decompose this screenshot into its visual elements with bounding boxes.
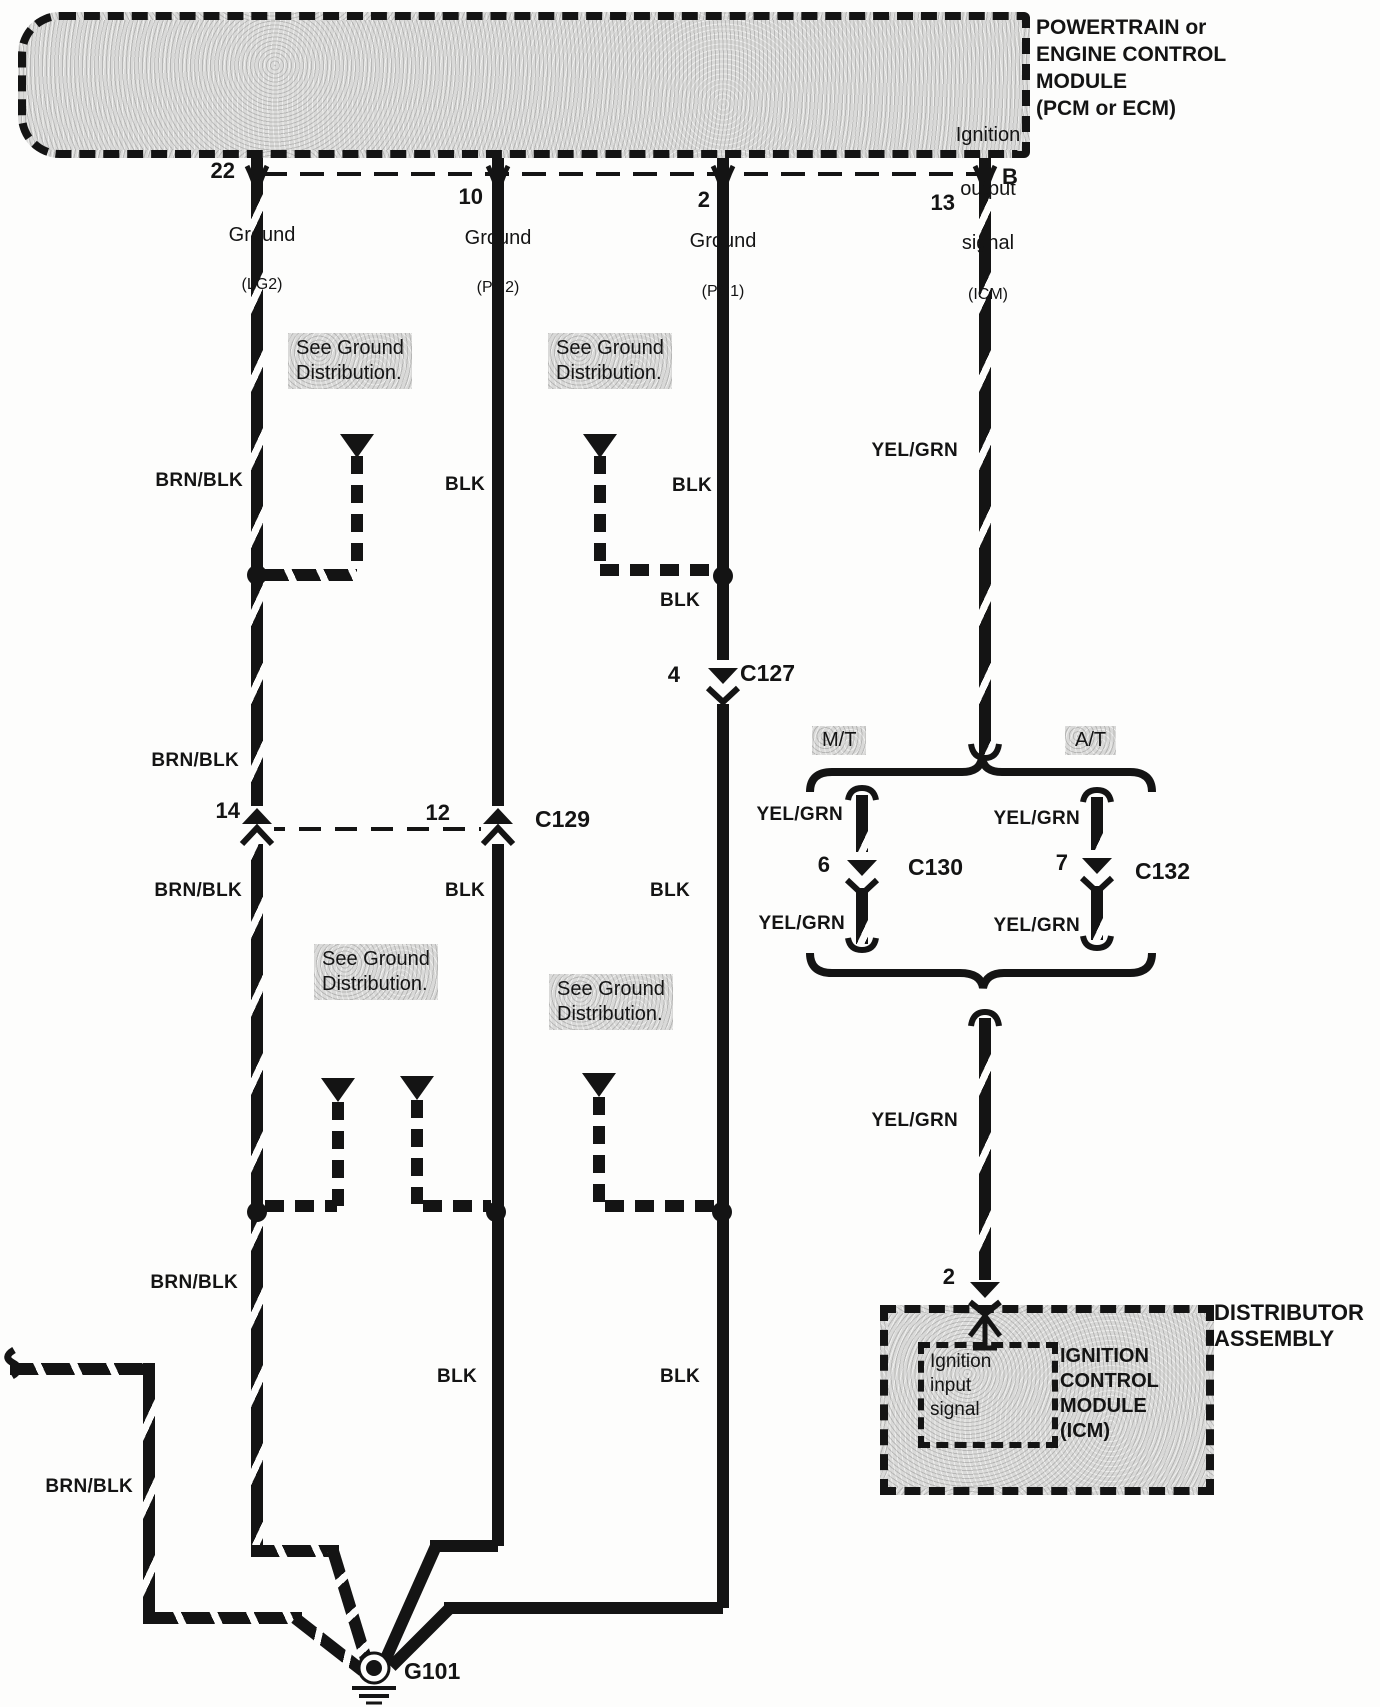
- see-ground-note-line2: Distribution.: [557, 1002, 665, 1027]
- pcm-title-line3: MODULE: [1036, 68, 1226, 95]
- pin-label-ground-pg2: Ground: [448, 227, 548, 250]
- icm-title-line2: CONTROL: [1060, 1369, 1159, 1394]
- pin-label-ignition-3: signal: [938, 232, 1038, 255]
- wire-label-brnblk-2: BRN/BLK: [129, 750, 239, 772]
- wire-pg2-blk-vertical: [492, 158, 504, 1546]
- pin-sub-pg1: (PG1): [673, 283, 773, 301]
- wire-icm-yelgrn-lower: [979, 1018, 991, 1280]
- c130-id: C130: [908, 854, 963, 881]
- icm-title-line4: (ICM): [1060, 1419, 1159, 1444]
- pin-label-ground-pg1: Ground: [673, 230, 773, 253]
- wire-label-blk-4: BLK: [415, 880, 485, 902]
- pin-number-10: 10: [428, 184, 483, 210]
- pin-sub-pg2: (PG2): [448, 279, 548, 297]
- pcm-title-line4: (PCM or ECM): [1036, 95, 1226, 122]
- pin-sub-icm: (ICM): [938, 286, 1038, 304]
- c129-connector-icon: [240, 806, 515, 844]
- input-signal-line1: Ignition: [930, 1350, 991, 1374]
- wire-label-brnblk-5: BRN/BLK: [23, 1476, 133, 1498]
- pin-label-ignition-1: Ignition: [938, 124, 1038, 147]
- distributor-pin-number: 2: [905, 1264, 955, 1290]
- see-ground-note-line1: See Ground: [557, 977, 665, 1002]
- wire-farleft-brnblk-bottom: [150, 1612, 302, 1624]
- icm-title-line1: IGNITION: [1060, 1344, 1159, 1369]
- stub-row1-left-horizontal: [265, 569, 357, 581]
- stub-row2-right-horizontal: [605, 1200, 717, 1212]
- c129-pin-right: 12: [395, 800, 450, 826]
- ignition-input-signal-label: Ignition input signal: [930, 1350, 991, 1422]
- pcm-pin-connector-hooks: [247, 166, 995, 194]
- c130-pin-number: 6: [780, 852, 830, 878]
- stub-row2-left-horizontal: [265, 1200, 337, 1212]
- c129-id: C129: [535, 806, 590, 833]
- wiring-diagram-page: Ground (LG2) Ground (PG2) Ground (PG1) I…: [0, 0, 1380, 1707]
- input-signal-line2: input: [930, 1374, 991, 1398]
- input-signal-line3: signal: [930, 1398, 991, 1422]
- see-ground-note-4: See Ground Distribution.: [549, 974, 673, 1030]
- wire-pg1-blk-vertical: [717, 158, 729, 1608]
- wire-pg1-blk-elbow: [444, 1602, 723, 1614]
- wire-at-branch-lower: [1091, 882, 1103, 940]
- see-ground-note-2: See Ground Distribution.: [548, 333, 672, 389]
- wire-label-blk-5: BLK: [620, 880, 690, 902]
- icm-title-line3: MODULE: [1060, 1394, 1159, 1419]
- distributor-assembly-title: DISTRIBUTOR ASSEMBLY: [1214, 1300, 1364, 1352]
- wire-label-blk-3: BLK: [630, 590, 700, 612]
- pin-number-22: 22: [180, 158, 235, 184]
- wire-end-hook: [848, 744, 1111, 1026]
- wire-label-yelgrn-5: YEL/GRN: [970, 915, 1080, 937]
- pcm-title-block: POWERTRAIN or ENGINE CONTROL MODULE (PCM…: [1036, 14, 1226, 122]
- c127-id: C127: [740, 660, 795, 687]
- c129-pin-left: 14: [185, 798, 240, 824]
- c132-id: C132: [1135, 858, 1190, 885]
- see-ground-note-line1: See Ground: [322, 947, 430, 972]
- at-chip: A/T: [1065, 726, 1116, 755]
- stub-row2-mid-horizontal: [423, 1200, 491, 1212]
- c132-pin-number: 7: [1018, 850, 1068, 876]
- wire-mt-branch-lower: [856, 884, 868, 944]
- stub-row2-left-vertical: [332, 1102, 344, 1206]
- wire-label-brnblk-1: BRN/BLK: [133, 470, 243, 492]
- wire-label-blk-6: BLK: [407, 1366, 477, 1388]
- wire-lg2-brnblk-elbow: [251, 1545, 339, 1557]
- distributor-title-line1: DISTRIBUTOR: [1214, 1300, 1364, 1326]
- wire-label-yelgrn-6: YEL/GRN: [848, 1110, 958, 1132]
- wire-lg2-brnblk-vertical: [251, 158, 263, 1551]
- see-ground-note-line1: See Ground: [296, 336, 404, 361]
- stub-row1-right-vertical: [594, 456, 606, 566]
- see-ground-note-line1: See Ground: [556, 336, 664, 361]
- wire-farleft-brnblk-vertical: [143, 1363, 155, 1624]
- wire-label-brnblk-3: BRN/BLK: [132, 880, 242, 902]
- see-ground-note-line2: Distribution.: [322, 972, 430, 997]
- wire-label-blk-2: BLK: [642, 475, 712, 497]
- mt-chip: M/T: [812, 726, 866, 755]
- pcm-title-line1: POWERTRAIN or: [1036, 14, 1226, 41]
- stub-row2-mid-vertical: [411, 1100, 423, 1204]
- wire-label-blk-1: BLK: [415, 474, 485, 496]
- pcm-title-line2: ENGINE CONTROL: [1036, 41, 1226, 68]
- stub-row1-left-vertical: [351, 456, 363, 568]
- distributor-title-line2: ASSEMBLY: [1214, 1326, 1364, 1352]
- wire-at-branch-upper: [1091, 797, 1103, 853]
- pin-number-2: 2: [655, 187, 710, 213]
- stub-row2-right-vertical: [593, 1097, 605, 1204]
- wire-label-yelgrn-4: YEL/GRN: [735, 913, 845, 935]
- wire-label-brnblk-4: BRN/BLK: [128, 1272, 238, 1294]
- see-ground-note-line2: Distribution.: [556, 361, 664, 386]
- wire-farleft-brnblk-top: [10, 1363, 155, 1375]
- pin-label-ground-lg2: Ground: [212, 224, 312, 247]
- icm-title-block: IGNITION CONTROL MODULE (ICM): [1060, 1344, 1159, 1444]
- pin-number-13: 13: [900, 190, 955, 216]
- mt-at-bracket: [810, 758, 1152, 988]
- c127-pin-number: 4: [630, 662, 680, 688]
- wire-label-yelgrn-2: YEL/GRN: [733, 804, 843, 826]
- g101-label: G101: [404, 1658, 460, 1685]
- see-ground-note-line2: Distribution.: [296, 361, 404, 386]
- wire-label-yelgrn-3: YEL/GRN: [970, 808, 1080, 830]
- pin-letter-b: B: [1002, 164, 1018, 190]
- wire-label-blk-7: BLK: [630, 1366, 700, 1388]
- wire-mt-branch-upper: [856, 795, 868, 855]
- see-ground-note-3: See Ground Distribution.: [314, 944, 438, 1000]
- stub-row1-right-horizontal: [600, 564, 718, 576]
- pcm-ecm-box: [18, 12, 1030, 158]
- pin-sub-lg2: (LG2): [212, 276, 312, 294]
- see-ground-note-1: See Ground Distribution.: [288, 333, 412, 389]
- wire-label-yelgrn-1: YEL/GRN: [848, 440, 958, 462]
